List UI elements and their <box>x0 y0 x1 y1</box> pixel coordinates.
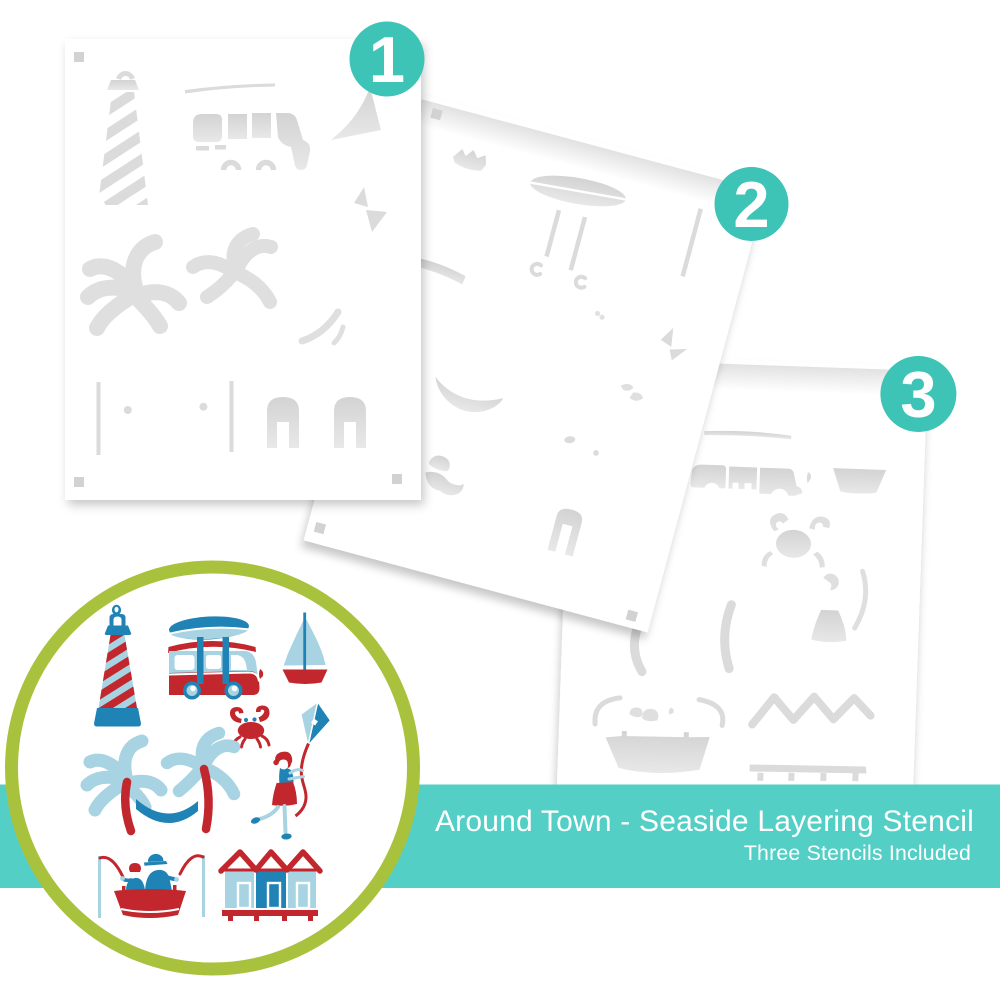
svg-text:2: 2 <box>733 168 769 241</box>
svg-text:1: 1 <box>369 23 405 96</box>
svg-text:Three Stencils Included: Three Stencils Included <box>744 841 971 865</box>
svg-text:3: 3 <box>900 358 936 431</box>
svg-text:Around Town - Seaside Layering: Around Town - Seaside Layering Stencil <box>435 805 974 838</box>
